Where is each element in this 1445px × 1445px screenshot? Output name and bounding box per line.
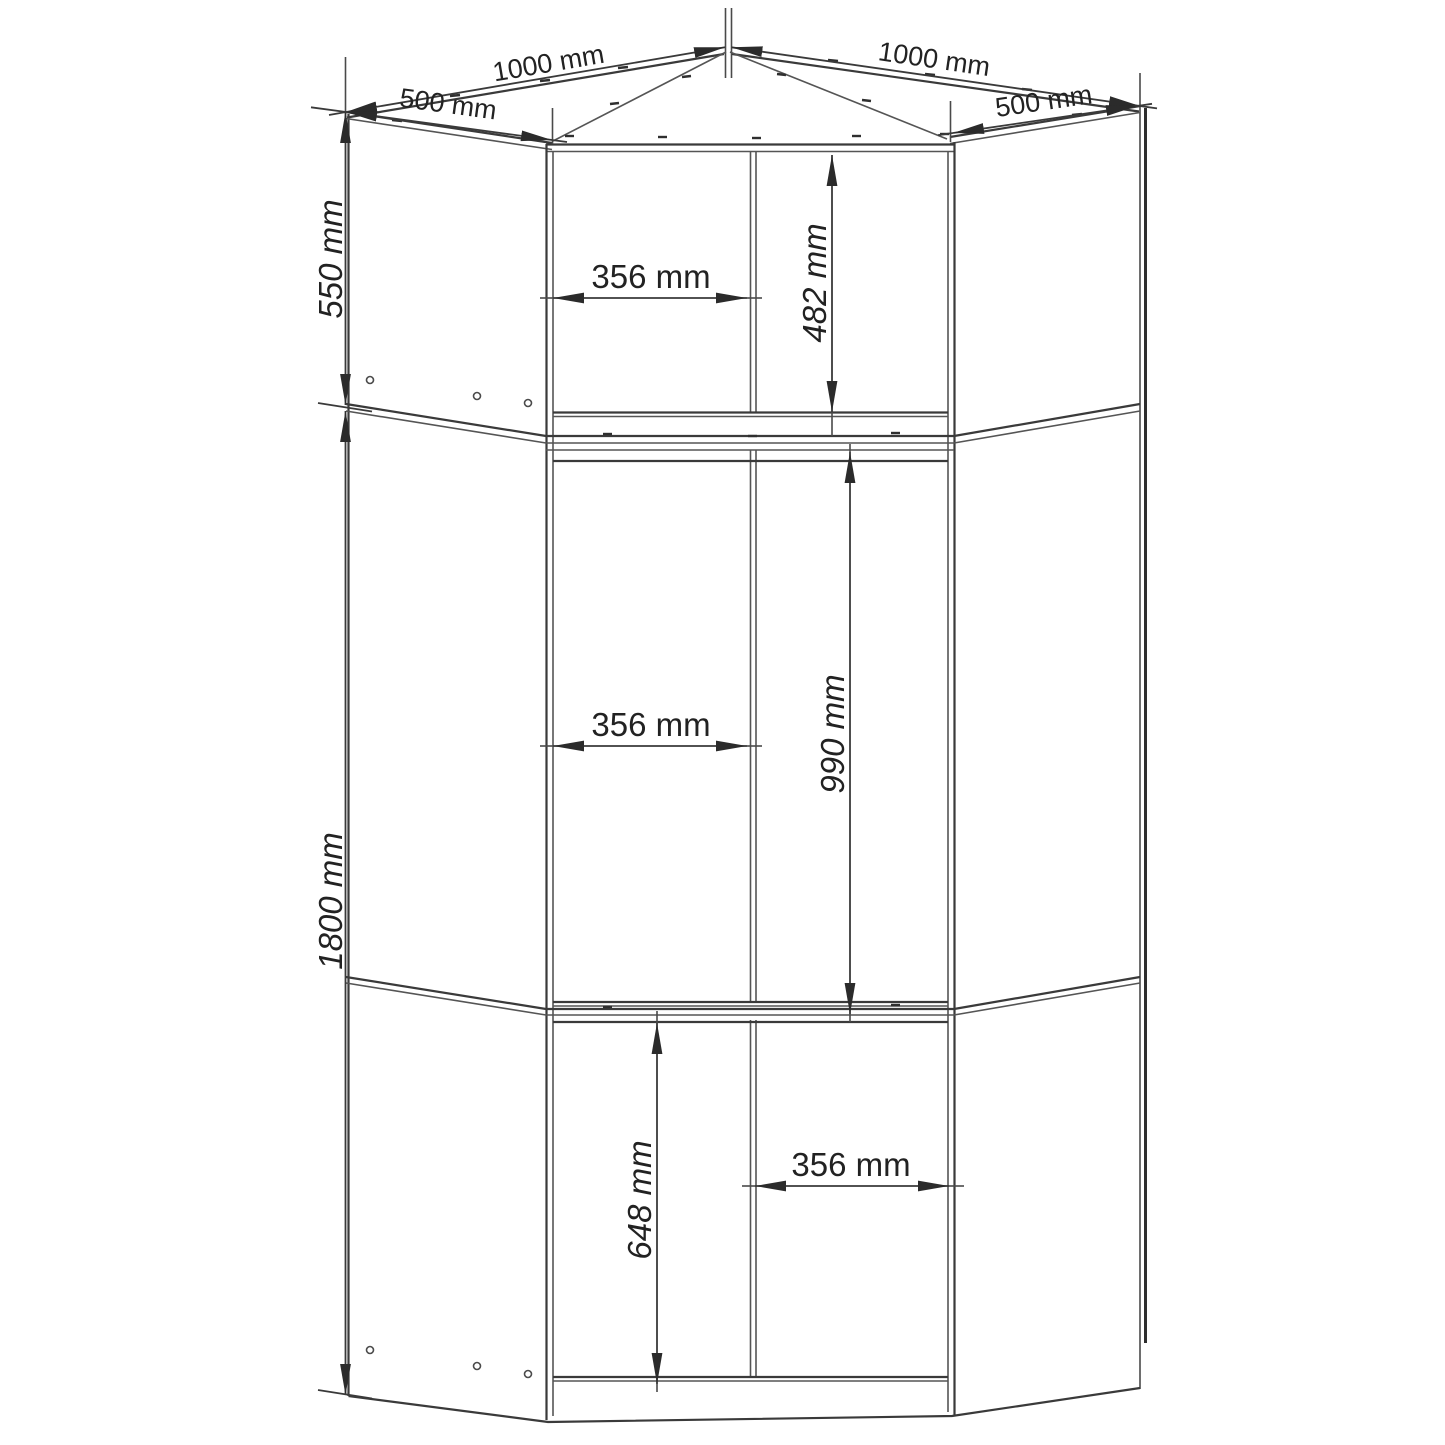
technical-drawing-canvas: 1000 mm 1000 mm 500 mm 500 mm 550 mm 180… (0, 0, 1445, 1445)
left-panel-top-edge-inner (346, 119, 552, 150)
wardrobe-dimension-diagram: 1000 mm 1000 mm 500 mm 500 mm 550 mm 180… (0, 0, 1445, 1445)
label-top-door-width: 356 mm (591, 258, 710, 295)
cabinet-base (349, 1377, 1141, 1422)
label-bottom-door-width: 356 mm (791, 1146, 910, 1183)
shelf-pin-holes (367, 377, 532, 1378)
label-base-cabinet-height: 1800 mm (312, 832, 349, 970)
upper-divider-band (346, 404, 1140, 461)
label-top-cabinet-height: 550 mm (312, 199, 349, 318)
label-bottom-door-height: 648 mm (621, 1140, 658, 1259)
dim-500-left-overshoot (311, 107, 346, 112)
label-middle-door-height: 990 mm (814, 674, 851, 793)
dimension-labels: 1000 mm 1000 mm 500 mm 500 mm 550 mm 180… (312, 36, 1094, 1259)
label-top-door-height: 482 mm (796, 223, 833, 342)
lower-divider-band (346, 977, 1140, 1022)
cabinet-structure (346, 73, 1146, 1422)
dim-1000-right-overshoot (1140, 106, 1157, 108)
right-panel-top-edge-inner (950, 113, 1140, 144)
dimension-lines (311, 47, 1157, 1398)
label-middle-door-width: 356 mm (591, 706, 710, 743)
dim-500-left-overshoot2 (552, 140, 567, 142)
